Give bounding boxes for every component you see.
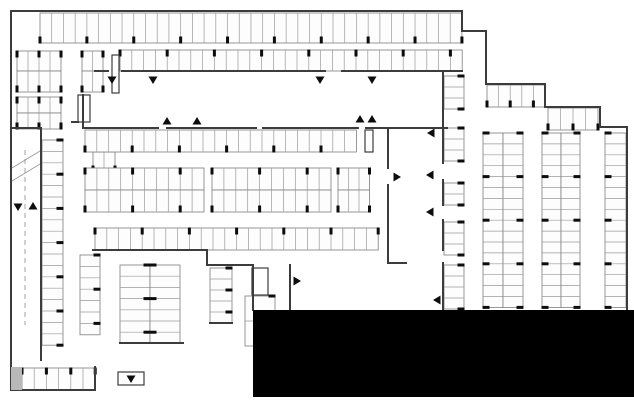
column-tick [45,368,48,375]
column-tick [38,97,41,104]
column-tick [574,306,581,309]
stall-row-northeast-step-row-2 [547,108,600,131]
column-tick [509,101,512,108]
column-tick [94,228,97,235]
column-tick [102,51,105,58]
column-tick [355,50,358,57]
column-tick [150,264,157,267]
direction-arrow-down-icon [368,77,377,85]
stall-row-outline [210,268,232,323]
column-tick [132,37,135,44]
column-tick [94,322,101,325]
column-tick [542,262,549,265]
stall-row-center-double-c-upper [337,168,372,191]
column-tick [574,132,581,135]
direction-arrow-up-icon [163,117,172,125]
column-tick [81,86,84,93]
stall-row-northeast-step-row-1 [486,85,546,108]
stall-row-outline [85,130,356,152]
column-tick [574,175,581,178]
column-tick [226,37,229,44]
stall-row-center-double-a-lower [84,190,205,213]
column-tick [211,206,214,213]
column-tick [258,168,261,175]
column-tick [337,206,340,213]
direction-arrow-left-icon [426,208,434,217]
column-tick [542,175,549,178]
column-tick [60,123,63,130]
redacted-block [253,310,634,397]
stall-row-east-strip1-seg3 [444,182,465,207]
column-tick [57,310,64,313]
column-tick [144,264,151,267]
column-tick [57,275,64,278]
column-tick [39,37,42,44]
column-tick [574,219,581,222]
column-tick [179,168,182,175]
blocks-layer [11,310,634,397]
stall-row-east-strip1-seg1 [444,75,465,111]
column-tick [179,206,182,213]
detail-line [12,151,40,168]
stall-row-outline [444,128,464,161]
column-tick [131,206,134,213]
floor-plan-svg [0,0,634,400]
column-tick [306,206,309,213]
column-tick [458,75,465,78]
stall-row-band2-group2-lower [81,71,105,93]
column-tick [574,262,581,265]
column-tick [337,168,340,175]
stall-row-east-strip1-seg4 [444,221,465,257]
stall-row-center-double-a-upper [84,168,205,191]
column-tick [16,86,19,93]
stall-row-mid-column-2-right [150,264,181,344]
column-tick [542,306,549,309]
column-tick [458,254,465,257]
stall-row-outline [338,168,370,190]
stall-row-band2-group1-lower [16,71,63,93]
column-tick [547,124,550,131]
direction-arrow-left-icon [426,171,434,180]
shaft-north [112,55,119,93]
column-tick [85,37,88,44]
column-tick [414,37,417,44]
column-tick [94,254,101,257]
column-tick [458,221,465,224]
column-tick [572,124,575,131]
column-tick [57,241,64,244]
direction-arrow-down-icon [316,77,325,85]
direction-arrow-up-icon [193,117,202,125]
column-tick [449,50,452,57]
stall-row-outline [338,190,370,212]
column-tick [60,97,63,104]
column-tick [306,168,309,175]
column-tick [69,368,72,375]
column-tick [60,86,63,93]
stall-row-east-strip4 [605,132,627,309]
stall-row-mid-column-1 [80,254,101,335]
column-tick [144,297,151,300]
stall-row-east-strip1-seg5 [444,264,465,311]
column-tick [460,37,463,44]
stall-row-band2-group2-upper [81,51,105,72]
column-tick [483,175,490,178]
direction-arrow-left-icon [427,129,435,138]
detail-line [12,164,40,181]
column-tick [368,168,371,175]
column-tick [141,228,144,235]
column-tick [16,97,19,104]
column-tick [38,51,41,58]
column-tick [605,262,612,265]
stall-row-east-strip3-right [561,132,581,309]
direction-arrow-down-icon [14,204,23,212]
direction-arrow-up-icon [29,202,38,210]
column-tick [16,51,19,58]
column-tick [367,37,370,44]
column-tick [517,262,524,265]
column-tick [532,101,535,108]
direction-arrow-up-icon [356,115,365,123]
column-tick [330,228,333,235]
column-tick [57,139,64,142]
column-tick [150,331,157,334]
column-tick [188,228,191,235]
column-tick [320,146,323,153]
column-tick [368,206,371,213]
stall-row-band2-group1-upper [16,51,63,72]
column-tick [225,146,228,153]
column-tick [542,132,549,135]
column-tick [377,228,380,235]
direction-arrow-down-icon [149,77,158,85]
stall-row-outline [487,85,545,107]
stall-row-outline [120,50,462,71]
column-tick [458,160,465,163]
column-tick [38,86,41,93]
stall-row-west-column [42,139,64,347]
stall-row-center-row-4 [94,228,380,251]
column-tick [258,206,261,213]
column-tick [458,108,465,111]
column-tick [211,168,214,175]
column-tick [486,101,489,108]
direction-arrow-right-icon [394,173,402,182]
column-tick [84,206,87,213]
column-tick [320,37,323,44]
stall-row-east-strip1-seg2 [444,127,465,163]
stall-row-mid-column-3 [210,267,233,324]
column-tick [458,204,465,207]
column-tick [144,331,151,334]
column-tick [605,306,612,309]
stall-row-outline [444,76,464,109]
stall-row-band3-group-upper [16,97,63,114]
column-tick [213,50,216,57]
column-tick [517,306,524,309]
column-tick [57,207,64,210]
column-tick [102,86,105,93]
stall-row-band2-long-row [119,50,463,72]
column-tick [226,267,233,270]
column-tick [273,37,276,44]
column-tick [458,264,465,267]
column-tick [94,288,101,291]
column-tick [150,297,157,300]
stall-row-mid-column-2-left [120,264,151,344]
column-tick [81,51,84,58]
column-tick [226,289,233,292]
column-tick [458,127,465,130]
column-tick [605,175,612,178]
column-tick [235,228,238,235]
direction-arrow-right-icon [294,277,302,286]
shaft-center [365,130,373,152]
column-tick [483,219,490,222]
floor-plan [0,0,634,400]
column-tick [57,344,64,347]
column-tick [458,182,465,185]
column-tick [483,306,490,309]
stall-row-top-row [39,13,464,44]
column-tick [131,146,134,153]
column-tick [60,51,63,58]
column-tick [272,146,275,153]
column-tick [260,50,263,57]
column-tick [57,173,64,176]
stall-row-east-strip2-left [483,132,504,309]
stall-row-center-double-c-lower [337,190,372,213]
column-tick [517,132,524,135]
column-tick [517,175,524,178]
stall-row-east-strip3-left [542,132,562,309]
column-tick [269,295,276,298]
column-tick [179,37,182,44]
column-tick [542,219,549,222]
column-tick [84,168,87,175]
column-tick [282,228,285,235]
column-tick [166,50,169,57]
stair-core [252,268,268,295]
stall-row-center-double-b-upper [211,168,332,191]
column-tick [226,311,233,314]
stall-row-east-strip2-right [503,132,524,309]
column-tick [605,132,612,135]
column-tick [307,50,310,57]
column-tick [178,146,181,153]
column-tick [517,219,524,222]
stall-row-outline [444,222,464,255]
shaded-corner-block [11,367,22,390]
stall-row-center-double-b-lower [211,190,332,213]
direction-arrow-up-icon [368,115,377,123]
stall-row-center-row-1 [84,130,357,153]
stall-row-southwest-bottom-row [21,368,97,391]
column-tick [402,50,405,57]
column-tick [605,219,612,222]
column-tick [131,168,134,175]
column-tick [483,132,490,135]
direction-arrow-left-icon [433,296,441,305]
column-tick [483,262,490,265]
column-tick [84,146,87,153]
